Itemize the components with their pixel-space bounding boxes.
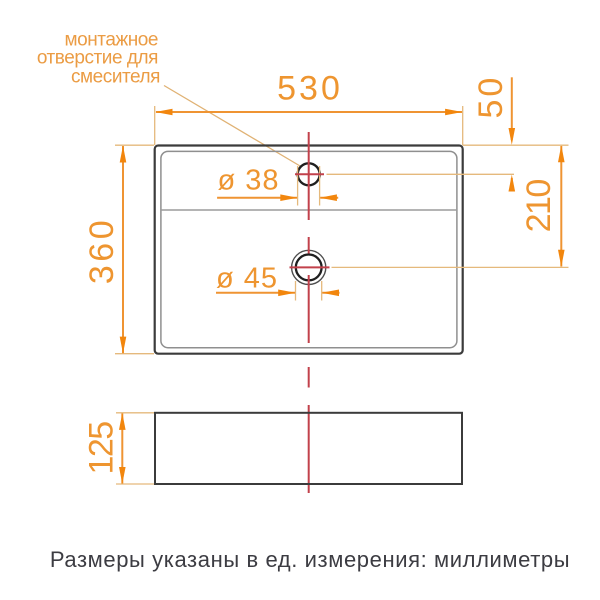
svg-text:Размеры указаны в ед. измерени: Размеры указаны в ед. измерения: миллиме…: [50, 547, 570, 572]
svg-text:ø 45: ø 45: [216, 263, 278, 295]
svg-text:50: 50: [472, 75, 510, 119]
svg-text:отверстие для: отверстие для: [37, 48, 158, 69]
svg-text:ø 38: ø 38: [218, 165, 280, 197]
svg-text:360: 360: [83, 217, 121, 284]
svg-text:125: 125: [83, 422, 121, 475]
svg-text:смесителя: смесителя: [71, 67, 160, 88]
svg-text:530: 530: [277, 70, 343, 108]
svg-text:210: 210: [520, 180, 558, 233]
